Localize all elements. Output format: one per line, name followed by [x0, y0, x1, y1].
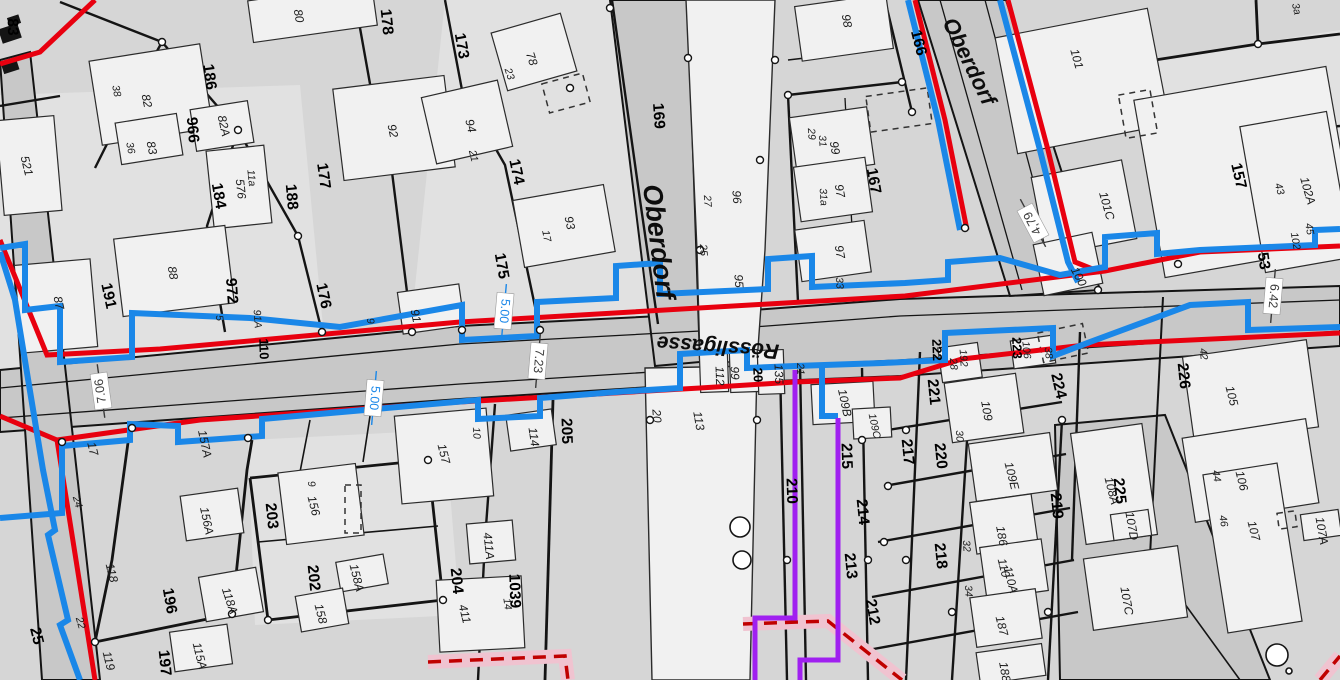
dimension-tick [506, 284, 507, 293]
building-number-label: 188 [996, 661, 1013, 680]
parcel-number-label: 214 [853, 498, 873, 526]
building-number-label: 42 [1197, 348, 1210, 361]
parcel-number-label: 186 [199, 63, 219, 91]
boundary-node [881, 539, 888, 546]
parcel-number-label: 226 [1174, 362, 1194, 390]
building-number-label: 28 [947, 357, 960, 371]
boundary-node [903, 557, 910, 564]
parcel-number-label: 110 [256, 338, 272, 359]
boundary-node [962, 225, 969, 232]
building-number-label: 33 [833, 277, 846, 290]
parcel-number-label: 222 [929, 339, 945, 361]
building [1083, 546, 1187, 631]
dimension-value: 5.00 [367, 385, 383, 411]
boundary-node [1045, 609, 1052, 616]
building-number-label: 44 [1209, 469, 1223, 483]
boundary-node [859, 437, 866, 444]
boundary-node [1255, 41, 1262, 48]
round-structure [730, 517, 750, 537]
boundary-node [772, 57, 779, 64]
boundary-node [909, 109, 916, 116]
parcel-number-label: 188 [282, 183, 301, 211]
parcel-number-label: 215 [837, 443, 855, 470]
boundary-node [785, 92, 792, 99]
parcel-number-label: 20 [750, 367, 765, 382]
building-number-label: 46 [1216, 514, 1230, 528]
building-number-label: 91A [251, 309, 264, 328]
boundary-node [159, 39, 166, 46]
building-number-label: 20 [649, 408, 664, 424]
dimension-tick [540, 334, 541, 343]
dimension-tick [376, 371, 377, 380]
boundary-node [425, 457, 432, 464]
building-number-label: 31 [816, 135, 829, 147]
parcel-number-label: 83 [4, 18, 22, 36]
parcel-number-label: 210 [782, 478, 800, 504]
building-number-label: 45 [1302, 222, 1316, 236]
building-number-label: 96 [729, 190, 744, 205]
building-number-label: 38 [1042, 347, 1055, 360]
boundary-node [235, 127, 242, 134]
building-number-label: 112 [712, 366, 727, 386]
building-number-label: 135 [771, 364, 786, 385]
building-number-label: 99 [728, 366, 742, 380]
boundary-node [607, 5, 614, 12]
parcel-number-label: 177 [313, 162, 333, 190]
parcel-number-label: 213 [841, 552, 861, 580]
parcel-number-label: 53 [1254, 251, 1273, 271]
building-number-label: 114 [526, 426, 543, 447]
parcel-number-label: 204 [447, 567, 467, 595]
parcel-number-label: 203 [262, 502, 282, 530]
boundary-node [754, 417, 761, 424]
parcel-number-label: 220 [931, 442, 951, 470]
parcel-number-label: 221 [924, 378, 944, 406]
boundary-node [1095, 287, 1102, 294]
building-number-label: 30 [953, 430, 966, 443]
dimension-tick [502, 329, 503, 338]
boundary-node [899, 79, 906, 86]
boundary-node [784, 557, 791, 564]
dimension-tick [372, 416, 373, 425]
boundary-node [903, 427, 910, 434]
boundary-node [440, 597, 447, 604]
building-number-label: 14 [500, 597, 514, 610]
building-number-label: 34 [962, 585, 975, 598]
building-number-label: 10 [470, 427, 483, 440]
round-structure [1266, 644, 1288, 666]
parcel-number-label: 218 [931, 542, 951, 570]
building-number-label: 106 [1019, 341, 1033, 360]
parcel-number-label: 217 [898, 438, 918, 466]
boundary-node [295, 233, 302, 240]
dimension-tick [1275, 269, 1276, 278]
parcel-number-label: 219 [1047, 492, 1067, 520]
boundary-node [129, 425, 136, 432]
dimension-tick [536, 379, 537, 388]
building-number-label: 88 [165, 265, 181, 281]
parcel-number-label: 966 [183, 116, 202, 144]
boundary-node [567, 85, 574, 92]
building-number-label: 95 [731, 274, 746, 289]
dimension-value: 5.00 [497, 298, 513, 324]
boundary-node [865, 557, 872, 564]
boundary-node [409, 329, 416, 336]
cadastral-map-canvas[interactable]: 8318418696617817317417718819197217617516… [0, 0, 1340, 680]
parcel-boundary [1256, 0, 1258, 44]
boundary-node [949, 609, 956, 616]
building-number-label: 32 [960, 540, 973, 553]
building-number-label: 411A [480, 532, 497, 560]
boundary-node [685, 55, 692, 62]
building-number-label: 27 [701, 194, 714, 209]
boundary-node [1175, 261, 1182, 268]
boundary-node [885, 483, 892, 490]
boundary-node [319, 329, 326, 336]
building-number-label: 11a [244, 169, 258, 187]
boundary-node [537, 327, 544, 334]
boundary-node [459, 327, 466, 334]
building-number-label: 29 [805, 127, 818, 141]
building-number-label: 25 [697, 243, 710, 257]
boundary-node [92, 639, 99, 646]
parcel-number-label: 205 [557, 418, 575, 445]
parcel-number-label: 169 [649, 102, 668, 129]
boundary-node [265, 617, 272, 624]
boundary-node [59, 439, 66, 446]
boundary-node [245, 435, 252, 442]
building [115, 113, 183, 164]
round-structure [733, 551, 751, 569]
building-number-label: 80 [291, 8, 307, 24]
dimension-tick [1271, 314, 1272, 323]
parcel-number-label: 972 [222, 277, 241, 304]
building-number-label: 31a [817, 188, 830, 206]
parcel-number-label: 178 [377, 8, 397, 36]
boundary-node [757, 157, 764, 164]
round-structure [1286, 668, 1292, 674]
dimension-value: 7.23 [531, 348, 547, 374]
map-svg[interactable]: 8318418696617817317417718819197217617516… [0, 0, 1340, 680]
building-number-label: 91 [408, 308, 424, 324]
parcel-number-label: 202 [304, 564, 324, 592]
parcel-number-label: 197 [155, 649, 175, 677]
boundary-node [1059, 417, 1066, 424]
building-number-label: 98 [839, 13, 855, 29]
dimension-value: 6.42 [1266, 283, 1282, 309]
building-number-label: 21 [794, 362, 806, 375]
